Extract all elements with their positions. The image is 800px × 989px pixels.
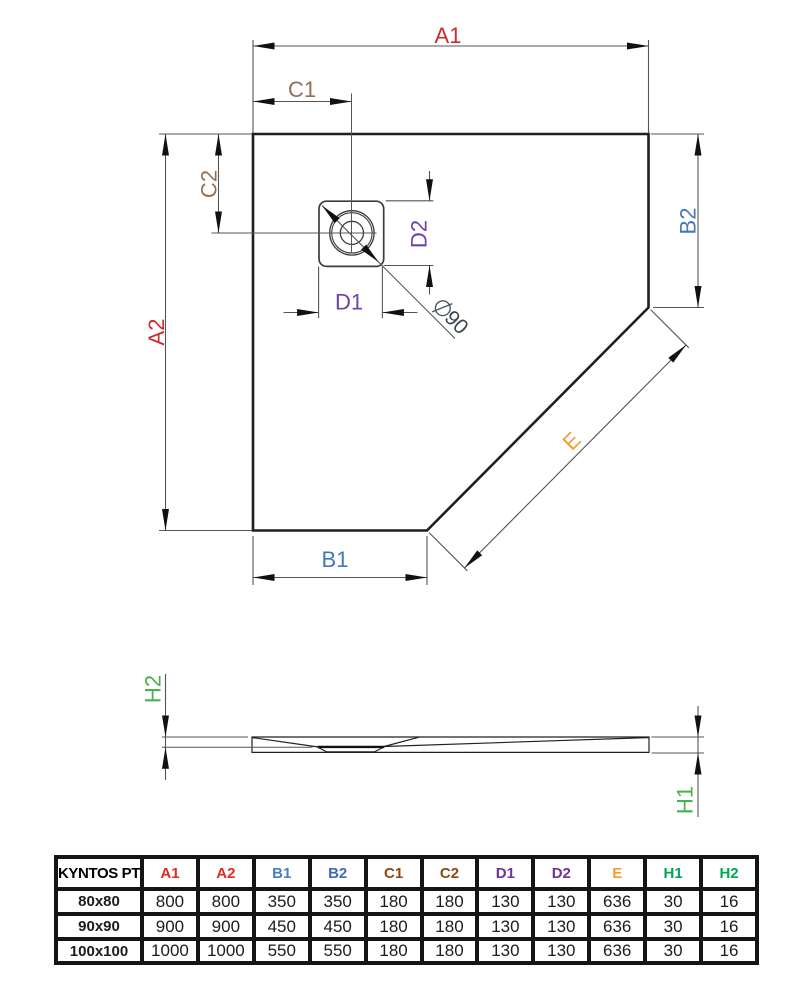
svg-text:90: 90 [440, 306, 473, 339]
svg-text:B1: B1 [322, 547, 349, 572]
svg-text:C2: C2 [197, 170, 222, 198]
svg-text:D1: D1 [335, 290, 363, 315]
svg-text:A2: A2 [144, 319, 169, 346]
svg-text:C1: C1 [288, 77, 316, 102]
svg-text:D2: D2 [407, 220, 432, 248]
svg-text:H2: H2 [141, 675, 166, 703]
svg-text:H1: H1 [673, 786, 698, 814]
svg-text:A1: A1 [435, 23, 462, 48]
svg-text:B2: B2 [676, 208, 701, 235]
